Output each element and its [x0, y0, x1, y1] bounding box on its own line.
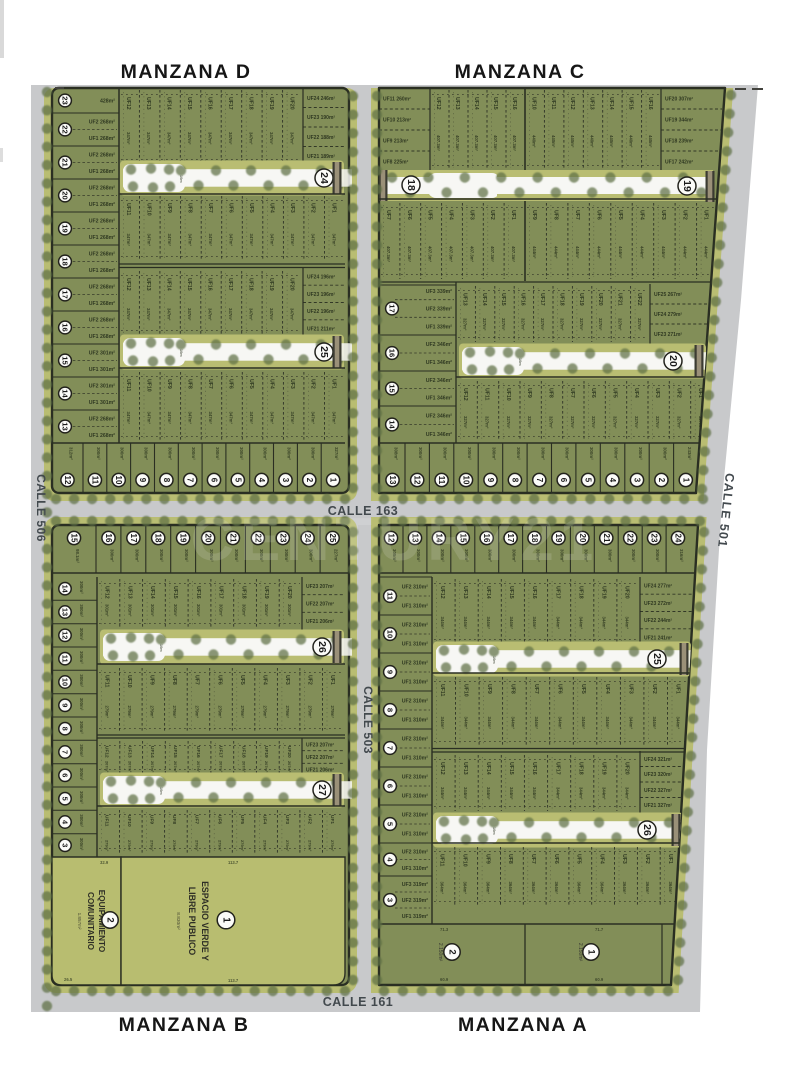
svg-text:MANZANA B: MANZANA B	[119, 1014, 250, 1036]
svg-text:MANZANA D: MANZANA D	[121, 61, 252, 83]
svg-text:MANZANA A: MANZANA A	[458, 1014, 588, 1036]
svg-text:MANZANA C: MANZANA C	[455, 61, 586, 83]
